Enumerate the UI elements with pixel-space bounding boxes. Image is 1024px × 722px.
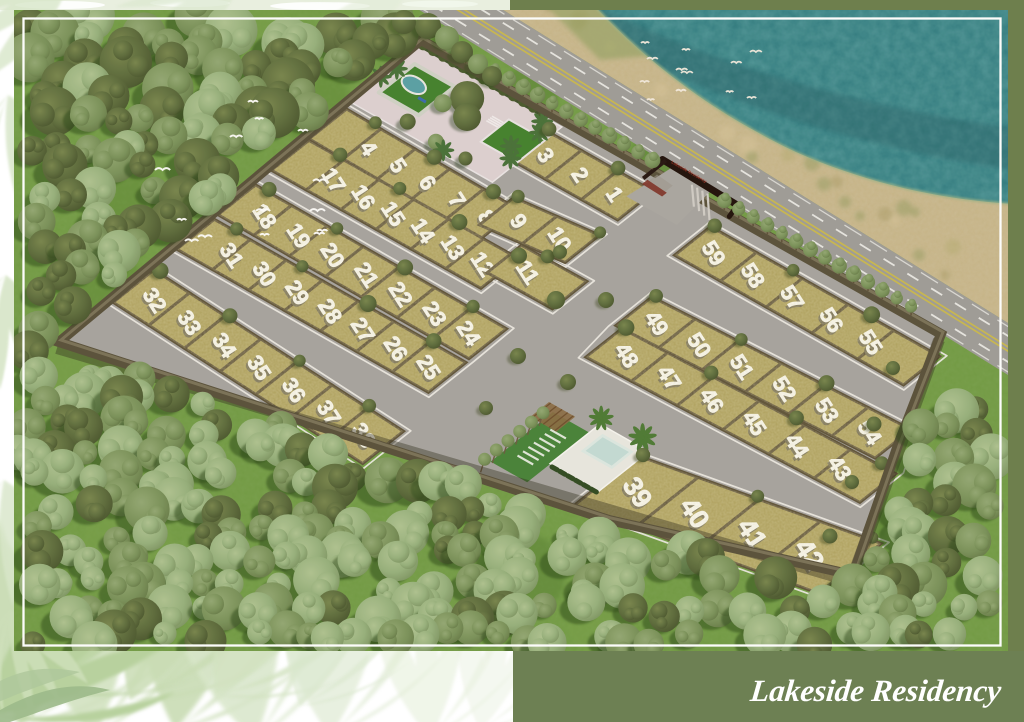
svg-text:Lakeside Residency: Lakeside Residency bbox=[748, 673, 1003, 708]
